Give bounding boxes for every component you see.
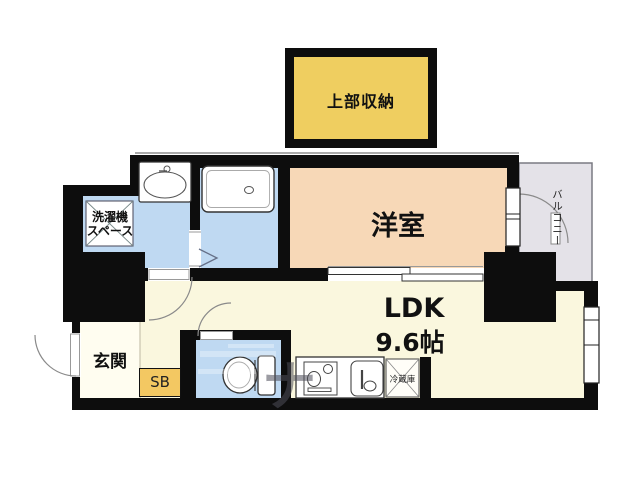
western-room-window [506, 188, 520, 246]
watermark-glyph: ナ [262, 342, 316, 421]
western-room-label: 洋室 [338, 204, 458, 243]
floorplan: 上部収納 洋室 LDK 9.6帖 洗濯機 スペース 玄関 SB 冷蔵庫 バルコニ… [0, 0, 640, 480]
ldk-label: LDK [352, 293, 476, 324]
storage-shadow-line [135, 152, 519, 154]
refrigerator-label: 冷蔵庫 [386, 373, 419, 385]
entrance-door-arc [35, 335, 76, 376]
upper-storage-label: 上部収納 [294, 88, 428, 112]
ldk-window [584, 307, 599, 383]
balcony-label: バルコニー [550, 172, 565, 264]
floorplan-drawing [0, 0, 640, 480]
washbasin-icon [139, 162, 191, 202]
ldk-size-label: 9.6帖 [348, 323, 472, 359]
bathtub-icon [202, 166, 274, 212]
entrance-door [35, 333, 81, 377]
shoe-box-label: SB [139, 373, 181, 391]
kitchen-sink-icon [351, 361, 383, 396]
laundry-space-label-line2: スペース [82, 222, 138, 239]
entrance-label: 玄関 [80, 347, 140, 372]
sliding-door [328, 267, 483, 282]
